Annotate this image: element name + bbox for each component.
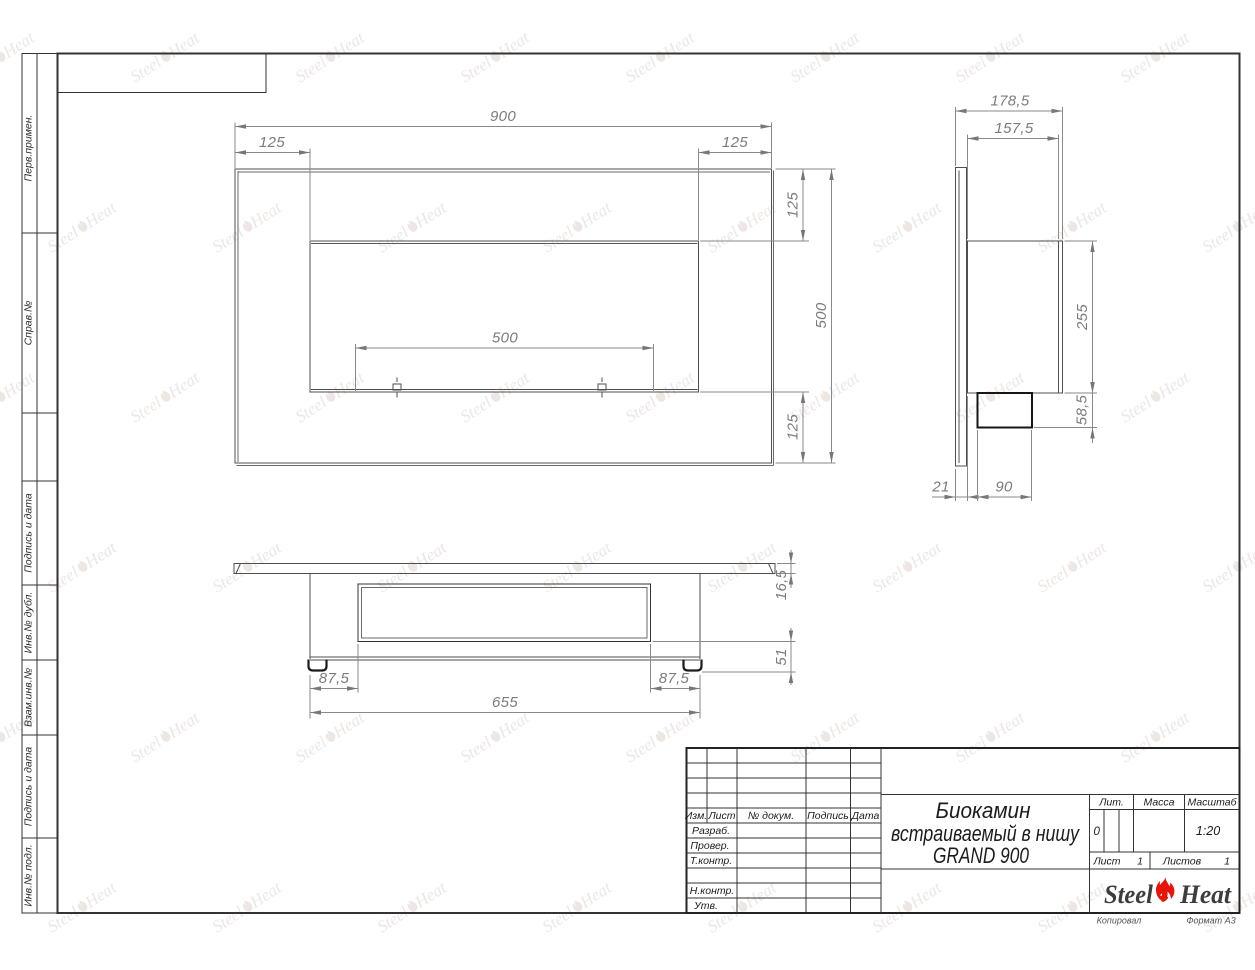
- svg-text:Масштаб: Масштаб: [1187, 797, 1237, 809]
- svg-text:№ докум.: № докум.: [748, 810, 794, 822]
- svg-text:500: 500: [813, 302, 830, 328]
- svg-text:Инв.№ дубл.: Инв.№ дубл.: [23, 592, 35, 654]
- svg-text:500: 500: [492, 330, 518, 347]
- svg-text:Биокамин: Биокамин: [936, 798, 1031, 823]
- svg-text:16,5: 16,5: [773, 569, 790, 600]
- svg-text:87,5: 87,5: [319, 670, 350, 687]
- svg-text:Лит.: Лит.: [1098, 797, 1124, 809]
- svg-text:125: 125: [259, 134, 285, 151]
- svg-text:Провер.: Провер.: [690, 840, 729, 852]
- svg-text:Утв.: Утв.: [693, 900, 718, 912]
- svg-text:125: 125: [722, 134, 748, 151]
- svg-text:Разраб.: Разраб.: [692, 825, 730, 837]
- svg-text:87,5: 87,5: [659, 670, 690, 687]
- svg-text:0: 0: [1093, 826, 1100, 838]
- svg-text:Steel: Steel: [1104, 880, 1154, 909]
- svg-text:51: 51: [773, 648, 790, 665]
- svg-text:Перв.примен.: Перв.примен.: [23, 115, 35, 182]
- svg-text:GRAND 900: GRAND 900: [933, 843, 1030, 868]
- svg-text:Т.контр.: Т.контр.: [690, 855, 732, 867]
- svg-text:1: 1: [1224, 856, 1230, 868]
- svg-text:157,5: 157,5: [994, 120, 1033, 137]
- svg-text:Лист: Лист: [1092, 856, 1120, 868]
- svg-text:Heat: Heat: [1179, 880, 1232, 909]
- svg-text:Листов: Листов: [1162, 856, 1202, 868]
- svg-text:Формат А3: Формат А3: [1186, 916, 1235, 926]
- svg-text:655: 655: [492, 694, 518, 711]
- svg-text:Подпись и дата: Подпись и дата: [23, 493, 35, 573]
- svg-text:255: 255: [1074, 304, 1091, 331]
- svg-text:Взам.инв.№: Взам.инв.№: [23, 668, 35, 727]
- svg-text:125: 125: [785, 414, 802, 440]
- svg-text:1:20: 1:20: [1196, 824, 1220, 838]
- svg-text:Н.контр.: Н.контр.: [690, 885, 734, 897]
- svg-text:125: 125: [785, 192, 802, 218]
- svg-text:Лист: Лист: [707, 810, 735, 822]
- svg-text:Подпись и дата: Подпись и дата: [23, 747, 35, 827]
- svg-text:Копировал: Копировал: [1097, 916, 1142, 926]
- svg-text:Изм.: Изм.: [685, 810, 707, 822]
- svg-text:Подпись: Подпись: [807, 810, 849, 822]
- svg-text:21: 21: [931, 479, 949, 496]
- svg-text:Инв.№ подл.: Инв.№ подл.: [23, 844, 35, 906]
- svg-text:900: 900: [490, 108, 516, 125]
- svg-text:90: 90: [995, 479, 1013, 496]
- svg-text:Масса: Масса: [1143, 797, 1174, 809]
- svg-text:178,5: 178,5: [990, 93, 1029, 110]
- svg-text:Дата: Дата: [851, 810, 880, 822]
- svg-text:58,5: 58,5: [1074, 394, 1091, 425]
- svg-text:Справ.№: Справ.№: [23, 301, 35, 346]
- svg-text:1: 1: [1137, 856, 1143, 868]
